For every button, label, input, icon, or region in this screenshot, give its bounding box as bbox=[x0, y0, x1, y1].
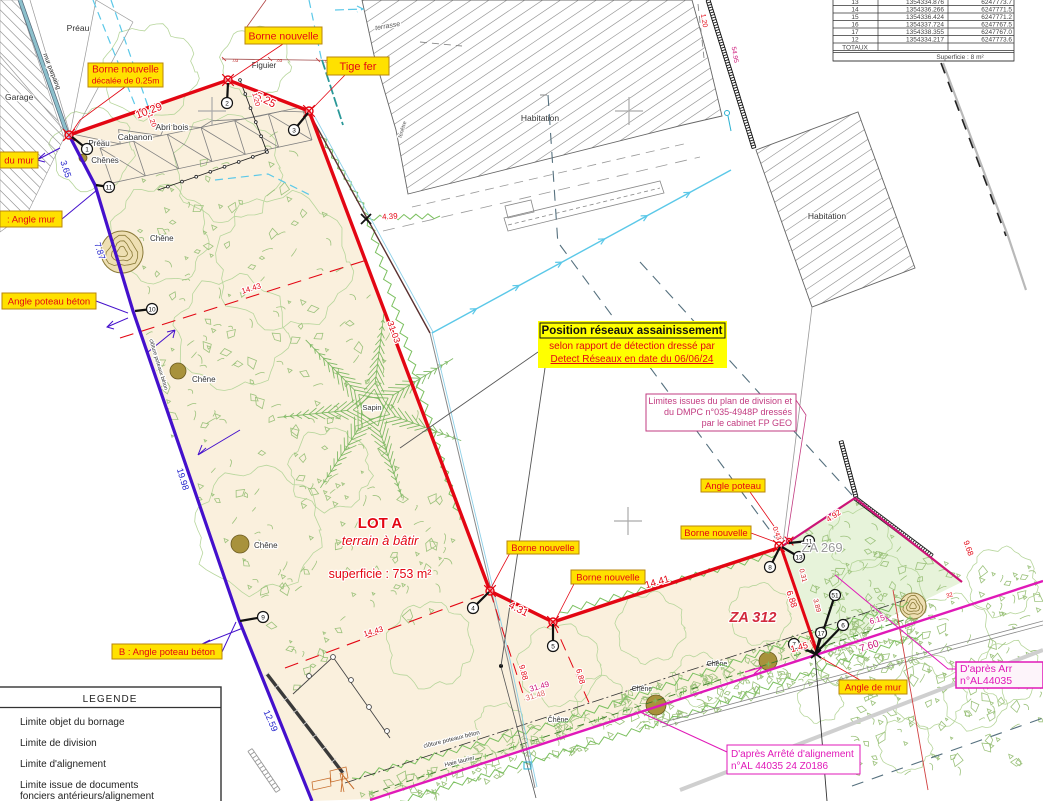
svg-text:6247773.7: 6247773.7 bbox=[981, 0, 1012, 6]
svg-text:selon rapport de détection dre: selon rapport de détection dressé par bbox=[549, 341, 715, 352]
svg-text:1354334.876: 1354334.876 bbox=[906, 0, 944, 6]
svg-text:16: 16 bbox=[851, 22, 859, 29]
svg-text:B : Angle poteau béton: B : Angle poteau béton bbox=[119, 647, 215, 658]
svg-text:17: 17 bbox=[851, 29, 859, 36]
svg-text:superficie : 753 m²: superficie : 753 m² bbox=[329, 567, 432, 581]
svg-text:Borne nouvelle: Borne nouvelle bbox=[511, 543, 574, 554]
svg-text:Habitation: Habitation bbox=[808, 211, 847, 221]
svg-text:1354336.424: 1354336.424 bbox=[906, 14, 944, 21]
svg-text:par le cabinet FP GEO: par le cabinet FP GEO bbox=[702, 418, 792, 428]
svg-text:Tige fer: Tige fer bbox=[340, 61, 377, 73]
svg-text:D'après Arr: D'après Arr bbox=[960, 663, 1013, 675]
svg-text:Cabanon: Cabanon bbox=[118, 132, 153, 142]
svg-text:décalée de 0.25m: décalée de 0.25m bbox=[92, 76, 160, 86]
svg-text:9: 9 bbox=[261, 614, 265, 621]
svg-text:n°AL 44035 24 Z0186: n°AL 44035 24 Z0186 bbox=[731, 761, 828, 772]
svg-text:Limite d'alignement: Limite d'alignement bbox=[20, 759, 106, 770]
svg-text:1354338.355: 1354338.355 bbox=[906, 29, 944, 36]
svg-text:14: 14 bbox=[851, 7, 859, 14]
svg-text:.03: .03 bbox=[232, 58, 239, 63]
svg-text:1: 1 bbox=[85, 146, 89, 153]
svg-text:Chêne: Chêne bbox=[192, 375, 216, 384]
svg-text:Limites issues du plan de divi: Limites issues du plan de division et bbox=[648, 396, 792, 406]
svg-text:Chêne: Chêne bbox=[150, 234, 174, 243]
svg-text:1354337.724: 1354337.724 bbox=[906, 22, 944, 29]
svg-text:4.39: 4.39 bbox=[382, 211, 399, 221]
svg-text:D'après Arrêté d'alignement: D'après Arrêté d'alignement bbox=[731, 749, 854, 760]
svg-text:Borne nouvelle: Borne nouvelle bbox=[684, 528, 747, 539]
svg-text:1354336.266: 1354336.266 bbox=[906, 7, 944, 14]
svg-text:Angle de mur: Angle de mur bbox=[845, 682, 902, 693]
svg-text:LEGENDE: LEGENDE bbox=[83, 694, 138, 705]
svg-text:51: 51 bbox=[831, 592, 839, 599]
svg-text:4: 4 bbox=[471, 605, 475, 612]
svg-text:12: 12 bbox=[851, 37, 859, 44]
svg-text:Borne nouvelle: Borne nouvelle bbox=[248, 30, 318, 42]
svg-text:.03: .03 bbox=[276, 58, 283, 63]
svg-text:Angle poteau béton: Angle poteau béton bbox=[8, 296, 90, 307]
svg-text:Borne nouvelle: Borne nouvelle bbox=[92, 65, 159, 76]
svg-text:Habitation: Habitation bbox=[521, 113, 560, 123]
svg-text:LOT A: LOT A bbox=[358, 515, 403, 532]
svg-text:Limite objet du bornage: Limite objet du bornage bbox=[20, 717, 125, 728]
svg-text:Position réseaux assainissemen: Position réseaux assainissement bbox=[542, 325, 723, 337]
svg-text:10: 10 bbox=[148, 306, 156, 313]
svg-text:du DMPC n°035-4948P dressés: du DMPC n°035-4948P dressés bbox=[664, 407, 793, 417]
svg-text:Superficie : 8 m²: Superficie : 8 m² bbox=[936, 54, 984, 61]
svg-text:6247771.2: 6247771.2 bbox=[981, 14, 1012, 21]
svg-text:13: 13 bbox=[795, 554, 803, 561]
svg-text:: Angle mur: : Angle mur bbox=[7, 214, 55, 225]
svg-text:5: 5 bbox=[551, 643, 555, 650]
svg-text:6: 6 bbox=[841, 622, 845, 629]
svg-text:ZA 269: ZA 269 bbox=[801, 540, 842, 555]
svg-text:Chênes: Chênes bbox=[91, 156, 119, 165]
svg-text:Chêne: Chêne bbox=[707, 661, 728, 668]
svg-text:Sapin: Sapin bbox=[362, 403, 381, 412]
svg-text:11: 11 bbox=[106, 184, 113, 191]
svg-text:6247767.5: 6247767.5 bbox=[981, 22, 1012, 29]
svg-text:13: 13 bbox=[851, 0, 859, 6]
svg-text:1354334.217: 1354334.217 bbox=[906, 37, 944, 44]
svg-text:fonciers antérieurs/alignement: fonciers antérieurs/alignement bbox=[20, 791, 154, 801]
svg-text:TOTAUX: TOTAUX bbox=[842, 45, 868, 52]
svg-text:2: 2 bbox=[225, 100, 229, 107]
svg-text:Limite issue de documents: Limite issue de documents bbox=[20, 780, 138, 791]
svg-text:6247773.6: 6247773.6 bbox=[981, 37, 1012, 44]
svg-text:Préau: Préau bbox=[67, 23, 90, 33]
svg-text:8: 8 bbox=[768, 564, 772, 571]
svg-text:Garage: Garage bbox=[5, 92, 34, 102]
svg-text:Abri bois: Abri bois bbox=[155, 122, 188, 132]
svg-text:n°AL44035: n°AL44035 bbox=[960, 675, 1012, 687]
svg-text:du mur: du mur bbox=[4, 155, 34, 166]
svg-text:Borne nouvelle: Borne nouvelle bbox=[576, 572, 639, 583]
svg-text:ZA 312: ZA 312 bbox=[728, 610, 776, 626]
svg-text:Limite de division: Limite de division bbox=[20, 738, 97, 749]
svg-text:6247767.0: 6247767.0 bbox=[981, 29, 1012, 36]
svg-text:Chêne: Chêne bbox=[254, 541, 278, 550]
svg-text:3: 3 bbox=[292, 127, 296, 134]
svg-text:15: 15 bbox=[851, 14, 859, 21]
svg-text:6247771.5: 6247771.5 bbox=[981, 7, 1012, 14]
svg-text:Angle poteau: Angle poteau bbox=[705, 481, 761, 492]
svg-text:terrain à bâtir: terrain à bâtir bbox=[342, 533, 419, 548]
svg-text:17: 17 bbox=[817, 630, 825, 637]
svg-text:Detect Réseaux en date du 06/0: Detect Réseaux en date du 06/06/24 bbox=[551, 354, 714, 365]
